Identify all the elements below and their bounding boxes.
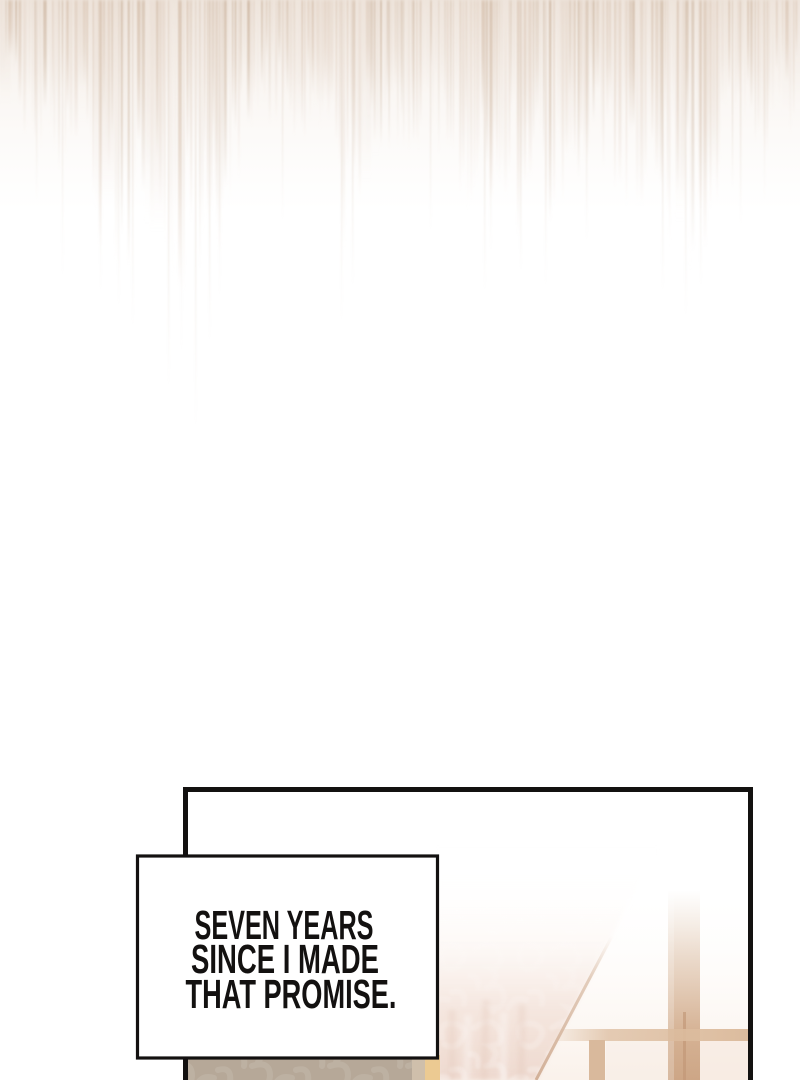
svg-text:THAT PROMISE.: THAT PROMISE. [186,971,397,1017]
